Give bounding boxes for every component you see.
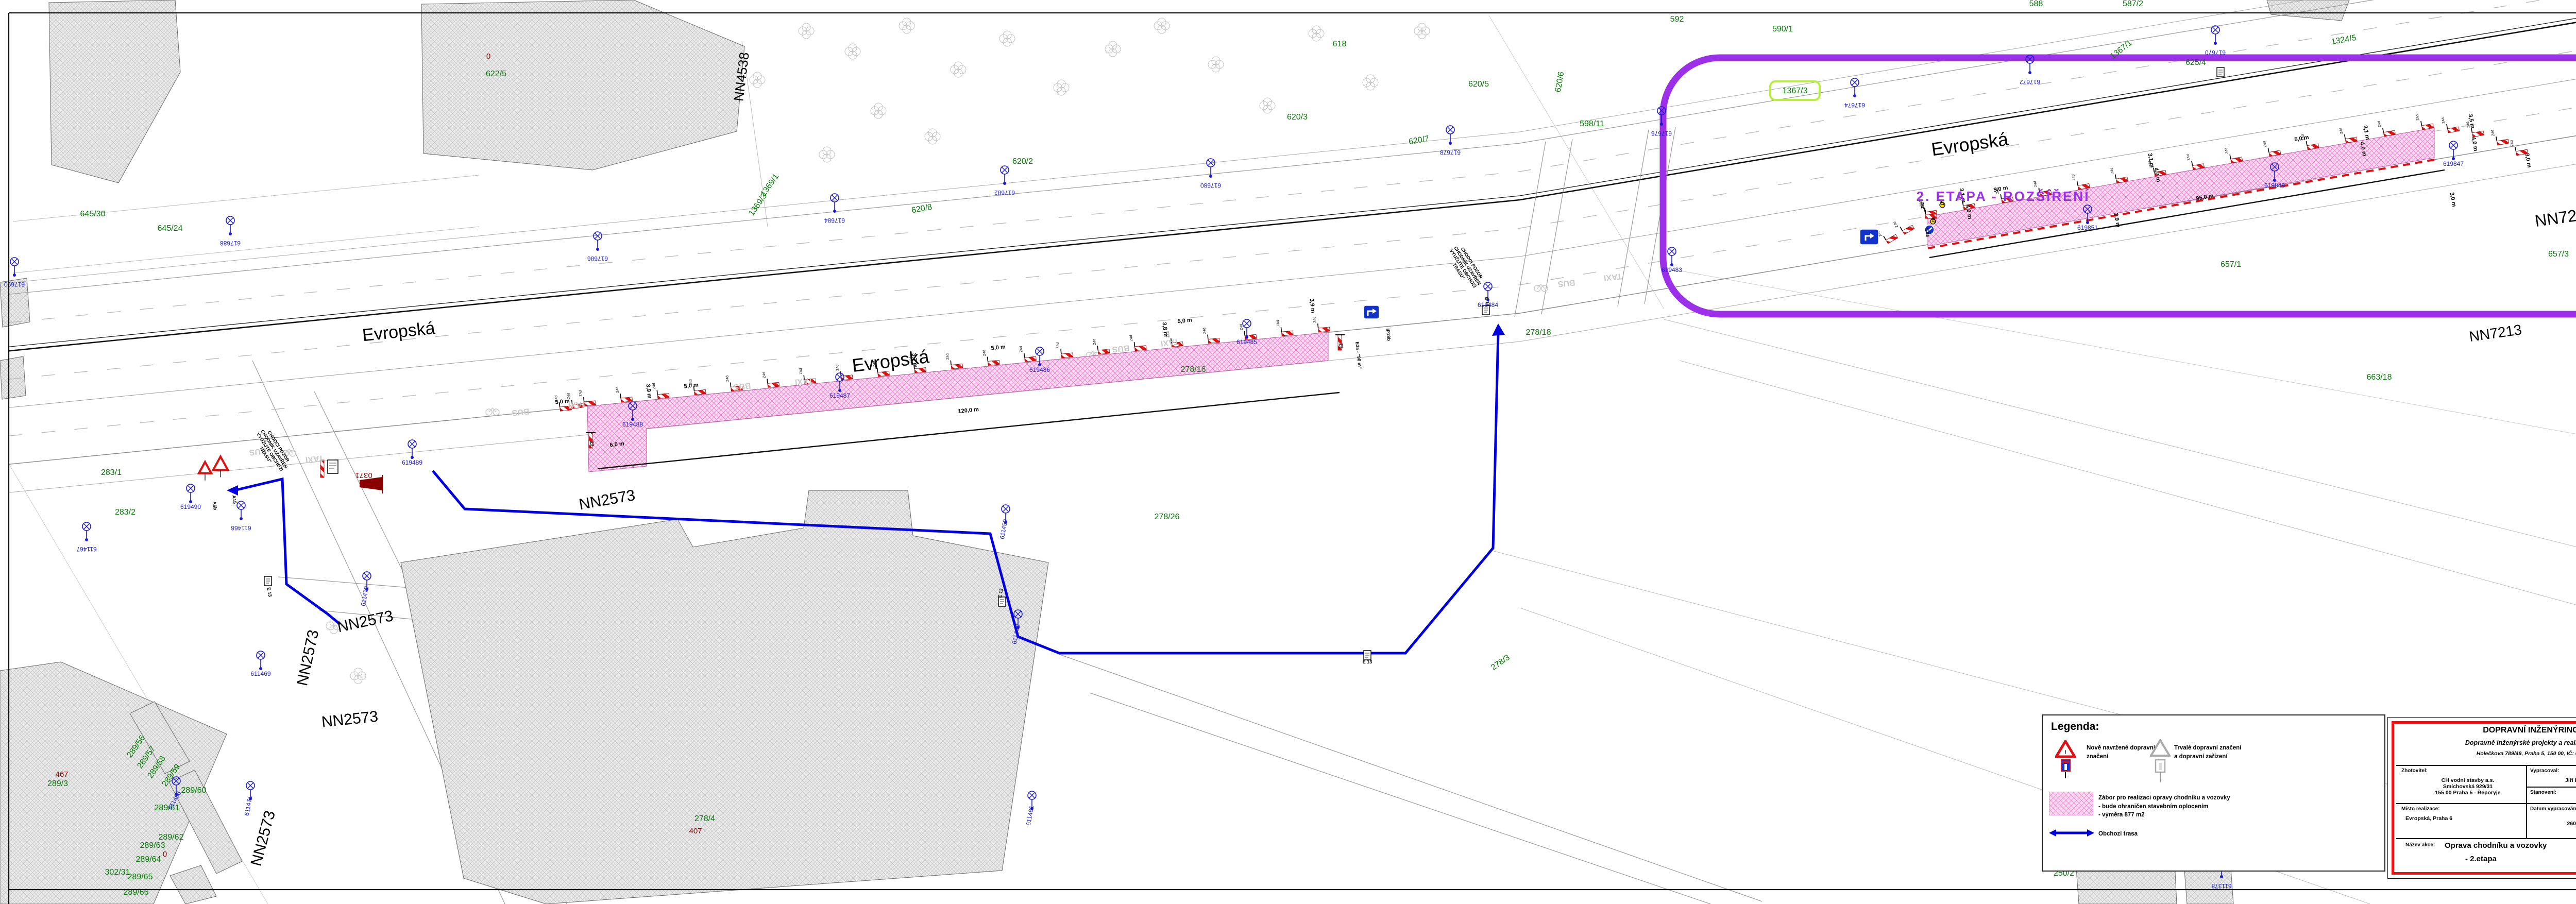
z4d-label: Z4d — [1203, 328, 1207, 334]
obchozi-arrow-icon — [2048, 828, 2095, 841]
e13-sign-icon — [2217, 67, 2224, 77]
parcel-label: 289/63 — [140, 841, 165, 850]
road-marking-label: BUS — [1111, 343, 1130, 353]
blue-info-sign-icon[interactable] — [1364, 305, 1379, 319]
building — [421, 0, 744, 170]
sign-label: S7 — [1930, 217, 1937, 224]
e13-sign-icon — [264, 576, 272, 586]
utility-label: 619488 — [622, 421, 643, 428]
company-name: DOPRAVNÍ INŽENÝRING PRAHA S.R.O. — [2388, 726, 2576, 735]
road-marking-label: BUS — [511, 406, 530, 417]
road-line — [9, 109, 2576, 465]
dimension-label: 3,0 m — [2524, 153, 2533, 168]
tree-icon — [951, 62, 966, 77]
warning-triangle-icon — [199, 462, 211, 481]
parcel-label: 278/26 — [1155, 513, 1180, 521]
z4d-label: Z4d — [762, 371, 767, 378]
legend-panel: Legenda: ! Nově navržené dopravní značen… — [2042, 714, 2385, 872]
z4d-label: Z4d — [2263, 141, 2267, 147]
dimension-label: 4,0 m — [2470, 137, 2479, 152]
parcel-label: 620/7 — [1408, 134, 1430, 147]
tree-icon — [1309, 26, 1324, 41]
parcel-label: 620/6 — [1554, 71, 1566, 93]
parcel-label: 663/18 — [2367, 373, 2392, 382]
dimension-label: 3,1 m — [2147, 153, 2156, 168]
utility-label: 617674 — [1844, 101, 1865, 109]
z4d-barrier-icon: Z4d — [2339, 125, 2357, 144]
block-label: NN7213 — [2534, 203, 2576, 230]
closure-warning-text: CHODCI POZORCHODNÍK UZAVŘENVYUŽIJTE OBCH… — [1444, 243, 1486, 292]
utility-marker-icon — [408, 440, 416, 459]
dimension-label: 3,9 m — [1309, 298, 1316, 313]
road-line — [9, 80, 2576, 436]
z4d-label: Z4d — [2187, 154, 2191, 161]
legend-item-zabor: Zábor pro realizaci opravy chodníku a vo… — [2098, 794, 2315, 820]
block-label: NN2573 — [578, 487, 636, 514]
cadastral-line — [1090, 693, 1710, 904]
parcel-label: 278/3 — [1489, 653, 1512, 672]
parcel-ref-label: 467 — [55, 770, 68, 779]
utility-marker-icon — [1446, 126, 1454, 145]
sign-label: IP18b — [1385, 328, 1392, 341]
z4d-label: Z4d — [2442, 117, 2446, 124]
work-zones-layer: Z4dZ4dZ4dZ4dZ4dZ4dZ4dZ4dZ4dZ4dZ4dZ4dZ4dZ… — [554, 58, 2576, 472]
tree-icon — [1363, 75, 1378, 90]
zabor-swatch — [2049, 792, 2093, 815]
crossing-line — [1515, 142, 1546, 317]
tree-icon — [1054, 80, 1069, 95]
dimension-label: 5,0 m — [1177, 317, 1192, 325]
z4d-label: Z4d — [1056, 342, 1060, 349]
dimension-label: 5,0 m — [555, 398, 570, 406]
z4d-barrier-icon: Z4d — [2110, 165, 2128, 184]
parcel-label: 645/30 — [80, 210, 106, 218]
road-marking-label: TAXI — [1160, 337, 1179, 348]
misto-label: Místo realizace: — [2401, 806, 2439, 812]
tb-divider-3 — [2396, 838, 2576, 839]
parcel-label: 592 — [1670, 15, 1684, 24]
utility-label: 611459 — [998, 518, 1009, 539]
zhotovitel-label: Zhotovitel: — [2401, 768, 2428, 774]
stanoveni-label: Stanovení: — [2530, 790, 2556, 795]
block-label: NN2573 — [336, 607, 395, 636]
road-marking-label: TAXI — [1603, 271, 1622, 282]
parcel-label: 620/5 — [1468, 80, 1489, 89]
street-label: Evropská — [1930, 128, 2010, 160]
utility-label: 619490 — [180, 503, 201, 510]
utility-marker-icon — [10, 258, 19, 277]
blue-info-sign-icon[interactable] — [1860, 229, 1878, 245]
utility-marker-icon — [82, 522, 91, 541]
road-line — [9, 0, 2576, 322]
utility-label: 619483 — [1662, 266, 1682, 274]
vypracoval-value: Jiří Hnát — [2537, 777, 2576, 783]
tree-icon — [350, 668, 366, 684]
dimension-label: 120,0 m — [958, 406, 979, 415]
block-label: NN2573 — [294, 628, 322, 688]
parcel-label: 289/62 — [159, 833, 184, 842]
tree-icon — [799, 23, 814, 39]
utility-label: 619847 — [2443, 160, 2464, 167]
utility-label: 619849 — [2264, 182, 2285, 189]
utility-label: 611470 — [360, 585, 370, 606]
parcel-label: 278/16 — [1181, 365, 1206, 374]
tree-icon — [845, 44, 860, 59]
utility-label: 619486 — [1029, 366, 1050, 373]
parcel-ref-label: 0 — [163, 850, 167, 859]
z4d-barrier-icon: Z4d — [762, 370, 779, 388]
parcel-label: 657/3 — [2548, 250, 2569, 259]
dimension-label: 3,1 m — [2362, 125, 2371, 141]
z4d-label: Z4d — [1093, 338, 1097, 345]
company-address: Holečkova 789/49, Praha 5, 150 00, IČ: 0… — [2388, 751, 2576, 757]
misto-value: Evropská, Praha 6 — [2405, 815, 2452, 822]
zabor-corridor-1 — [587, 332, 1328, 472]
dimension-label: 5,0 m — [991, 344, 1006, 352]
z4d-label: Z4d — [1893, 220, 1899, 228]
z4d-barrier-icon: Z4d — [1876, 224, 1898, 246]
dimension-label: 5,0 m — [2294, 134, 2310, 143]
z4d-label: Z4d — [2377, 121, 2382, 127]
sign-label: C4a — [1924, 228, 1931, 237]
parcel-ref-label: 407 — [689, 827, 702, 835]
z4d-barrier-icon: Z4d — [1129, 334, 1146, 351]
vypracoval-label: Vypracoval: — [2530, 768, 2559, 774]
tb-vdivider-3 — [2526, 803, 2527, 838]
z4d-barrier-icon: Z4d — [2442, 115, 2460, 133]
utility-label: 611469 — [250, 670, 270, 677]
building — [401, 490, 1048, 904]
stanoveni-value: O 22 — [2558, 793, 2576, 800]
parcel-label: 587/2 — [2123, 0, 2143, 8]
tree-icon — [1105, 41, 1121, 57]
tree-icon — [1260, 98, 1275, 113]
utility-label: 611378 — [2211, 882, 2231, 890]
dimension-label: 3,8 m — [1161, 322, 1169, 337]
utility-label: 619487 — [829, 392, 850, 399]
tree-icon — [819, 147, 835, 162]
parcel-label: 618 — [1333, 40, 1347, 48]
z4d-barrier-icon: Z4d — [2072, 172, 2090, 191]
z4d-label: Z4d — [2072, 174, 2076, 181]
z4d-label: Z4d — [616, 386, 620, 393]
z4d-barrier-icon: Z4d — [2416, 112, 2434, 130]
parcel-label: 302/31 — [105, 868, 130, 877]
cadastral-line — [1489, 15, 1664, 309]
z4d-label: Z4d — [2416, 114, 2420, 121]
traffic-plan-drawing: Z4dZ4dZ4dZ4dZ4dZ4dZ4dZ4dZ4dZ4dZ4dZ4dZ4dZ… — [0, 0, 2576, 904]
sign-label: E3a - "90 m" — [1354, 342, 1362, 369]
zhotovitel-value: CH vodní stavby a.s. Smíchovská 929/31 1… — [2414, 777, 2522, 796]
cadastral-line — [1680, 361, 2576, 649]
parcel-label: 289/60 — [181, 786, 207, 795]
z4d-label: Z4d — [1019, 346, 1023, 352]
legend-item-permanent-signs: Trvalé dopravní značení a dopravní zaříz… — [2174, 744, 2257, 761]
building — [2267, 0, 2349, 21]
z4d-barrier-icon: Z4d — [2263, 139, 2281, 157]
z4d-barrier-icon: Z4d — [1056, 341, 1073, 359]
z4d-label: Z4d — [1313, 316, 1317, 323]
bike-marking-icon — [486, 408, 499, 415]
cadastral-line — [13, 227, 479, 273]
cadastral-line — [1664, 268, 2576, 464]
utility-label: 617678 — [1440, 149, 1461, 156]
utility-label: 617686 — [587, 255, 608, 262]
route-arrowhead-north — [1492, 323, 1505, 336]
tree-icon — [925, 129, 940, 144]
utility-marker-icon — [226, 216, 234, 235]
dimension-label: 3,0 m — [2449, 192, 2458, 208]
legend-title: Legenda: — [2051, 721, 2384, 733]
parcel-label: 588 — [2029, 0, 2043, 8]
parcel-label: 289/65 — [128, 873, 153, 881]
z4d-label: Z4d — [2510, 140, 2515, 146]
parcel-label: 289/64 — [136, 855, 161, 864]
z4d-barrier-icon: Z4d — [652, 382, 669, 399]
permanent-sign-icon — [2150, 739, 2171, 786]
parcel-label: 620/3 — [1287, 113, 1308, 122]
building — [49, 0, 180, 183]
cadastral-line — [1664, 319, 2576, 587]
roads-layer — [9, 0, 2576, 492]
tb-divider-1 — [2396, 765, 2576, 766]
company-subtitle: Dopravně inženýrské projekty a realizace… — [2388, 739, 2576, 746]
sign-label: E 13 — [1363, 659, 1372, 664]
detour-route-branch[interactable] — [234, 479, 340, 624]
utility-label: 611467 — [76, 545, 96, 553]
dimension-label: 3,9 m — [645, 384, 653, 399]
z4d-label: Z4d — [2339, 127, 2344, 134]
utility-label: 617682 — [994, 189, 1015, 196]
z4d-label: Z4d — [799, 368, 803, 374]
utility-label: 619489 — [402, 459, 422, 466]
utility-label: 617670 — [2205, 49, 2226, 56]
datum-value: 260413 — [2537, 821, 2576, 827]
z4d-barrier-icon: Z4d — [1276, 319, 1293, 336]
utility-label: 617680 — [1200, 182, 1221, 189]
route-arrowhead-west — [227, 485, 238, 496]
utility-marker-icon — [831, 194, 839, 213]
block-label: NN7213 — [2468, 321, 2523, 345]
warning-triangle-icon — [213, 456, 228, 477]
z4d-barrier-icon: Z4d — [2225, 145, 2243, 164]
parcel-label: 622/5 — [486, 70, 506, 78]
utility-marker-icon — [1207, 159, 1215, 178]
tree-icon — [871, 103, 886, 118]
tree-icon — [999, 31, 1015, 46]
utility-marker-icon — [1851, 78, 1859, 97]
tree-icon — [1154, 18, 1170, 33]
road-marking-label: BUS — [733, 381, 751, 391]
new-sign-triangle-icon: ! — [2055, 740, 2076, 782]
parcel-label: 278/4 — [694, 814, 715, 823]
parcel-label: 283/1 — [101, 468, 122, 477]
z4d-label: Z4d — [1276, 320, 1280, 327]
block-label: NN2573 — [248, 809, 279, 868]
z4d-barrier-icon: Z4d — [2491, 127, 2509, 146]
nazev-value-1: Oprava chodníku a vozovky — [2445, 841, 2547, 850]
etapa2-label: 2. ETAPA - ROZŠÍŘENÍ — [1917, 189, 2090, 204]
utility-label: 617690 — [4, 281, 25, 288]
utility-marker-icon — [2211, 26, 2219, 45]
z4d-barrier-icon: Z4d — [2377, 118, 2395, 137]
z4d-barrier-icon: Z4d — [2187, 152, 2205, 170]
cadastral-line — [1059, 654, 1762, 901]
utility-label: 617684 — [824, 217, 845, 224]
parcel-label: 657/1 — [2221, 260, 2241, 269]
road-marking-label: TAXI — [568, 399, 587, 410]
tb-divider-2 — [2396, 803, 2576, 804]
block-label: NN2573 — [321, 708, 379, 730]
parcel-ref-label: 0 — [486, 52, 490, 61]
z4d-label: Z4d — [1129, 335, 1133, 342]
nazev-value-2: - 2.etapa — [2465, 855, 2497, 863]
datum-label: Datum vypracování — [2530, 806, 2576, 812]
parcel-label: 590/1 — [1772, 25, 1793, 33]
legend-item-obchozi: Obchozí trasa — [2098, 830, 2138, 839]
utility-label: 611468 — [231, 524, 251, 532]
utility-label: 617688 — [220, 240, 241, 247]
road-marking-label: BUS — [1557, 278, 1575, 288]
title-block: DOPRAVNÍ INŽENÝRING PRAHA S.R.O. Dopravn… — [2387, 717, 2576, 879]
z4d-label: Z4d — [2491, 129, 2496, 136]
utility-label: 619485 — [1236, 338, 1257, 346]
z4d-label: Z4d — [652, 383, 656, 389]
utility-marker-icon — [257, 651, 265, 670]
utility-marker-icon — [1668, 247, 1676, 266]
tb-subdivider — [2526, 787, 2576, 788]
parcel-label: 289/3 — [47, 779, 68, 788]
utility-label: 617672 — [2020, 78, 2040, 86]
tree-icon — [750, 72, 765, 88]
utility-label: 619851 — [2077, 224, 2098, 231]
sign-label: A6b — [212, 501, 218, 510]
z4d-label: Z4d — [2033, 181, 2038, 187]
dimension-label: 5,0 m — [684, 382, 699, 390]
sign-label: Z2 — [1338, 343, 1344, 349]
z4d-barrier-icon: Z4d — [616, 385, 633, 403]
utility-label: 611471 — [243, 795, 254, 816]
utility-marker-icon — [2449, 141, 2458, 160]
tree-icon — [1414, 23, 1430, 39]
z4d-label: Z4d — [836, 364, 840, 371]
z4d-barrier-icon: Z4d — [1893, 215, 1914, 236]
road-marking-label: TAXI — [305, 453, 324, 464]
utility-marker-icon — [594, 232, 602, 251]
utility-label: 611461 — [1025, 805, 1036, 826]
z4d-label: Z4d — [2110, 167, 2114, 174]
utility-label: 617676 — [1651, 130, 1672, 137]
legend-item-new-signs: Nově navržené dopravní značení — [2087, 744, 2159, 761]
nazev-label: Název akce: — [2405, 842, 2435, 848]
parcel-label: 645/24 — [158, 224, 183, 233]
e13-sign-icon — [1364, 651, 1371, 660]
road-line — [9, 0, 2576, 283]
road-marking-label: TAXI — [794, 376, 814, 386]
z4d-barrier-icon: Z4d — [1019, 345, 1036, 362]
parcel-label: 1367/3 — [1783, 87, 1808, 95]
parcel-ref-label: 0371 — [355, 471, 372, 480]
z4d-label: Z4d — [2225, 147, 2229, 154]
parcel-label: 625/4 — [2185, 58, 2206, 67]
parcel-label: 620/2 — [1012, 157, 1033, 166]
utility-marker-icon — [187, 484, 195, 503]
utility-marker-icon — [1001, 166, 1009, 185]
sign-label: A15 — [231, 495, 238, 504]
z4d-label: Z4d — [982, 350, 987, 356]
tree-icon — [899, 18, 914, 33]
z4d-barrier-icon: Z4d — [1203, 326, 1220, 344]
building — [170, 865, 216, 904]
sign-label: E 13 — [266, 587, 273, 597]
z4d-label: Z4d — [725, 376, 730, 382]
z4d-barrier-icon: Z4d — [1313, 315, 1330, 333]
parcel-label: 620/8 — [911, 203, 933, 215]
z4d-label: Z4d — [579, 390, 583, 397]
svg-text:!: ! — [2064, 749, 2066, 756]
utility-marker-icon — [237, 501, 245, 520]
sign-label: Z2 — [589, 441, 595, 447]
z4d-label: Z4d — [946, 353, 950, 360]
parcel-label: 598/11 — [1580, 120, 1604, 128]
parcel-label: 283/2 — [115, 508, 135, 517]
parcel-label: 278/18 — [1526, 328, 1551, 337]
z4d-barrier-icon: Z4d — [946, 352, 963, 369]
street-label: Evropská — [361, 318, 436, 346]
road-line — [9, 0, 2576, 294]
tree-icon — [1208, 57, 1224, 72]
parcel-label: 1324/5 — [2331, 33, 2357, 46]
